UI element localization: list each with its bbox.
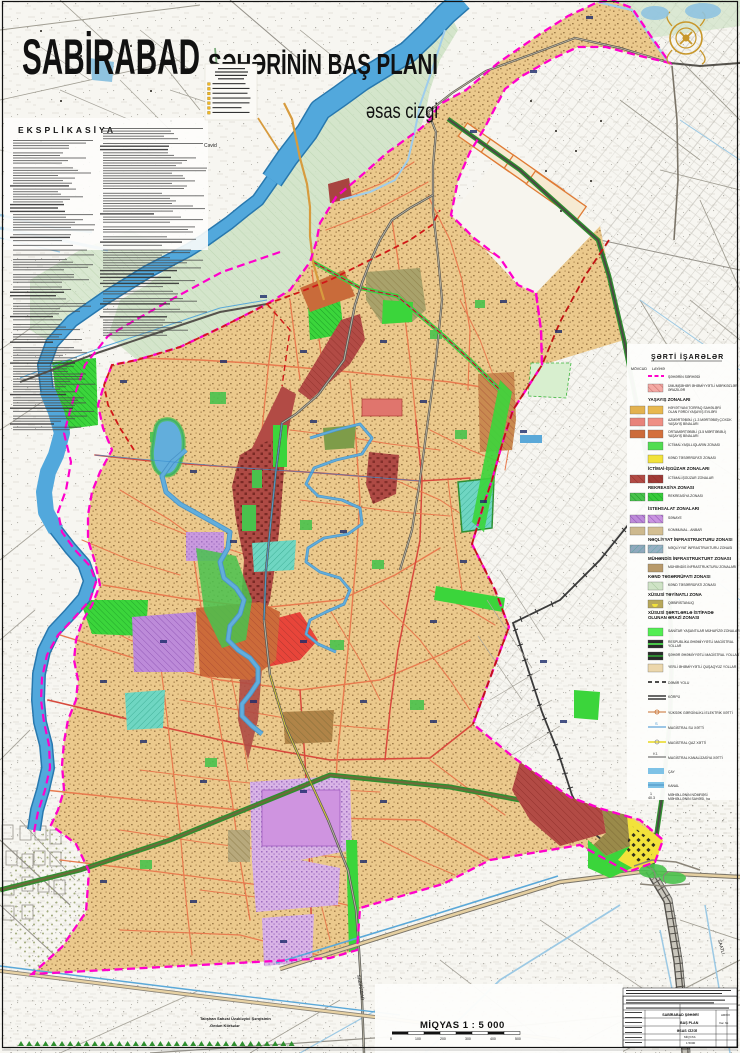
svg-text:BAŞ PLAN: BAŞ PLAN xyxy=(680,1021,699,1025)
svg-text:500: 500 xyxy=(515,1037,521,1041)
svg-text:SABİRABAD: SABİRABAD xyxy=(22,29,200,85)
svg-text:MAGİSTRAL KANALİZASİYA XƏTTİ: MAGİSTRAL KANALİZASİYA XƏTTİ xyxy=(668,755,723,760)
svg-text:YAŞAYIŞ BİNALARI: YAŞAYIŞ BİNALARI xyxy=(668,433,698,438)
svg-text:40.3: 40.3 xyxy=(648,796,655,800)
svg-text:KƏND TƏSƏRRÜFATI ZONASI: KƏND TƏSƏRRÜFATI ZONASI xyxy=(668,456,716,460)
svg-text:ƏSAS CİZGİ: ƏSAS CİZGİ xyxy=(677,1029,698,1033)
svg-text:SANİTAR YAŞANTILAR MÜHAFİZƏ ZO: SANİTAR YAŞANTILAR MÜHAFİZƏ ZONALARI xyxy=(668,628,740,633)
svg-text:ŞƏRTİ İŞARƏLƏR: ŞƏRTİ İŞARƏLƏR xyxy=(651,353,724,361)
svg-text:YOLLAR: YOLLAR xyxy=(668,644,682,648)
svg-text:MİQYAS 1 : 5 000: MİQYAS 1 : 5 000 xyxy=(420,1020,505,1031)
svg-text:MÜHƏNDİS İNFRASTRUKTURU ZONALA: MÜHƏNDİS İNFRASTRUKTURU ZONALARI xyxy=(668,564,736,569)
svg-text:KƏND TƏSƏRRÜFATI ZONASI: KƏND TƏSƏRRÜFATI ZONASI xyxy=(648,574,710,579)
svg-text:MÜHƏNDİS İNFRASTRUKTURT ZONASI: MÜHƏNDİS İNFRASTRUKTURT ZONASI xyxy=(648,556,731,561)
svg-text:200: 200 xyxy=(440,1037,446,1041)
svg-text:MİQYAS: MİQYAS xyxy=(684,1034,695,1039)
svg-text:Cəvid: Cəvid xyxy=(204,143,217,149)
svg-text:KOMMUNAL - ANBAR: KOMMUNAL - ANBAR xyxy=(668,528,703,532)
svg-text:XÜSUSİ TƏYİNATLI ZONA: XÜSUSİ TƏYİNATLI ZONA xyxy=(648,592,703,597)
svg-text:ƏRAZİLƏR: ƏRAZİLƏR xyxy=(668,387,686,392)
svg-text:SABİRABAD ŞƏHƏRİ: SABİRABAD ŞƏHƏRİ xyxy=(662,1013,698,1017)
svg-text:ŞƏHƏR ƏHƏMİYYƏTLİ MAGİSTRAL YO: ŞƏHƏR ƏHƏMİYYƏTLİ MAGİSTRAL YOLLAR xyxy=(668,652,740,657)
svg-text:KANAL: KANAL xyxy=(668,784,679,788)
svg-text:K1: K1 xyxy=(653,751,659,756)
svg-text:İSTEHSALAT ZONALARI: İSTEHSALAT ZONALARI xyxy=(648,506,699,511)
svg-text:OLUNAN ƏRAZİ ZONASI: OLUNAN ƏRAZİ ZONASI xyxy=(648,615,699,620)
svg-text:KÖRPÜ: KÖRPÜ xyxy=(668,695,681,699)
svg-text:100: 100 xyxy=(415,1037,421,1041)
svg-text:İCTİMAİ-İŞGÜZAR ZONALAR: İCTİMAİ-İŞGÜZAR ZONALAR xyxy=(668,475,714,480)
svg-text:Vər. №: Vər. № xyxy=(719,1021,729,1025)
svg-text:NƏQLİYYAT İNFRASTRUKTURU ZONAS: NƏQLİYYAT İNFRASTRUKTURU ZONASI xyxy=(648,537,732,542)
svg-text:YAŞAYIŞ ZONALARI: YAŞAYIŞ ZONALARI xyxy=(648,397,690,402)
svg-text:300: 300 xyxy=(465,1037,471,1041)
svg-text:MÖVCUD: MÖVCUD xyxy=(631,367,647,371)
svg-text:ARXİV: ARXİV xyxy=(721,1012,730,1017)
svg-text:LAYİHƏ: LAYİHƏ xyxy=(652,366,665,371)
svg-text:ŞƏHƏRİN SƏRHƏDİ: ŞƏHƏRİN SƏRHƏDİ xyxy=(668,374,700,379)
svg-text:OLAN FƏRDİ YAŞAYIŞ EVLƏRİ: OLAN FƏRDİ YAŞAYIŞ EVLƏRİ xyxy=(668,409,717,414)
svg-text:400: 400 xyxy=(490,1037,496,1041)
svg-text:QƏBİRİSTANLIQ: QƏBİRİSTANLIQ xyxy=(668,600,694,605)
svg-text:YÜKSƏK GƏRGİNLİKLİ ELEKTRİK XƏ: YÜKSƏK GƏRGİNLİKLİ ELEKTRİK XƏTTİ xyxy=(668,710,733,715)
svg-text:DƏMİR YOLU: DƏMİR YOLU xyxy=(668,680,690,685)
svg-text:MAGİSTRAL QAZ XƏTTİ: MAGİSTRAL QAZ XƏTTİ xyxy=(668,740,706,745)
svg-text:1:5000: 1:5000 xyxy=(686,1041,696,1045)
svg-text:YERLİ ƏHƏMİYYƏTLİ QUŞAQYÜZ YOL: YERLİ ƏHƏMİYYƏTLİ QUŞAQYÜZ YOLLAR xyxy=(668,664,737,669)
svg-text:REKREASİYA ZONASI: REKREASİYA ZONASI xyxy=(648,485,694,490)
svg-text:Gedən Körkələr: Gedən Körkələr xyxy=(210,1023,240,1028)
svg-text:MƏHƏLLƏNİN SAHƏSİ, ha: MƏHƏLLƏNİN SAHƏSİ, ha xyxy=(668,796,710,801)
svg-text:NƏQLİYYAT İNFRASTRUKTURU ZONAS: NƏQLİYYAT İNFRASTRUKTURU ZONASI xyxy=(668,545,732,550)
svg-text:İCTİMAİ-İŞGÜZAR ZONALARI: İCTİMAİ-İŞGÜZAR ZONALARI xyxy=(648,466,709,471)
svg-text:Talışhan Sahəsi Üzəkləyici Şər: Talışhan Sahəsi Üzəkləyici Şərqisinin xyxy=(200,1016,271,1021)
svg-text:YAŞAYIŞ BİNALARI: YAŞAYIŞ BİNALARI xyxy=(668,421,698,426)
svg-text:SƏNAYE: SƏNAYE xyxy=(668,516,683,520)
svg-text:MAGİSTRAL SU XƏTTİ: MAGİSTRAL SU XƏTTİ xyxy=(668,725,704,730)
svg-text:əsas cizgi: əsas cizgi xyxy=(366,100,438,123)
svg-text:ÇAY: ÇAY xyxy=(668,770,675,774)
svg-text:S: S xyxy=(655,721,658,726)
svg-text:KƏND TƏSƏRRÜFATI ZONASI: KƏND TƏSƏRRÜFATI ZONASI xyxy=(668,583,716,587)
svg-text:0: 0 xyxy=(390,1037,392,1041)
svg-text:EKSPLİKASİYA: EKSPLİKASİYA xyxy=(18,125,116,135)
svg-text:REKREASİYA ZONASI: REKREASİYA ZONASI xyxy=(668,493,703,498)
svg-text:İCTİMAİ-YAŞILLIQLARIN ZONASI: İCTİMAİ-YAŞILLIQLARIN ZONASI xyxy=(668,442,720,447)
